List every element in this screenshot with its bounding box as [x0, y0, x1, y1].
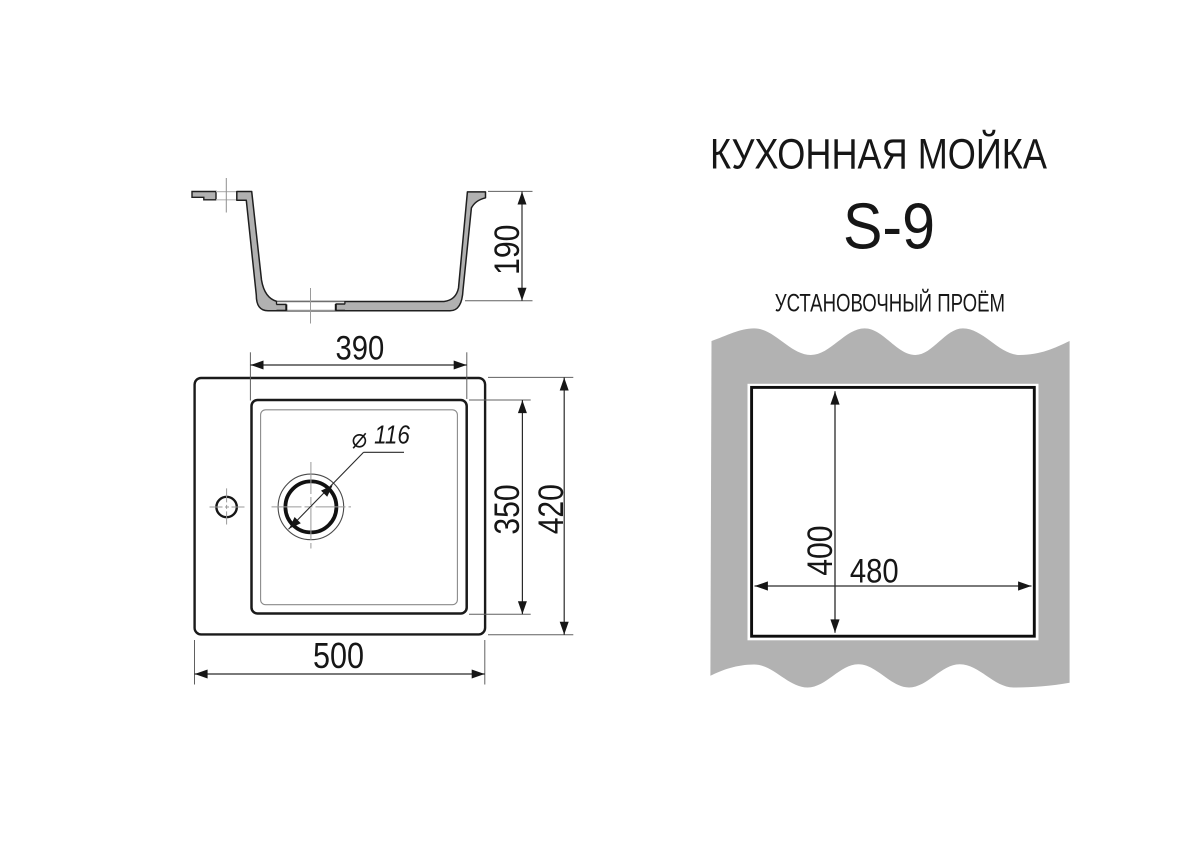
- svg-text:400: 400: [800, 526, 840, 576]
- svg-text:390: 390: [336, 329, 385, 368]
- svg-text:КУХОННАЯ МОЙКА: КУХОННАЯ МОЙКА: [710, 130, 1047, 179]
- svg-text:S-9: S-9: [843, 191, 935, 263]
- svg-text:УСТАНОВОЧНЫЙ ПРОЁМ: УСТАНОВОЧНЫЙ ПРОЁМ: [775, 289, 1005, 317]
- svg-text:190: 190: [487, 225, 527, 275]
- svg-text:480: 480: [850, 552, 899, 591]
- svg-text:500: 500: [313, 637, 364, 677]
- svg-text:420: 420: [531, 484, 571, 534]
- svg-text:116: 116: [374, 421, 410, 450]
- svg-text:350: 350: [487, 484, 527, 534]
